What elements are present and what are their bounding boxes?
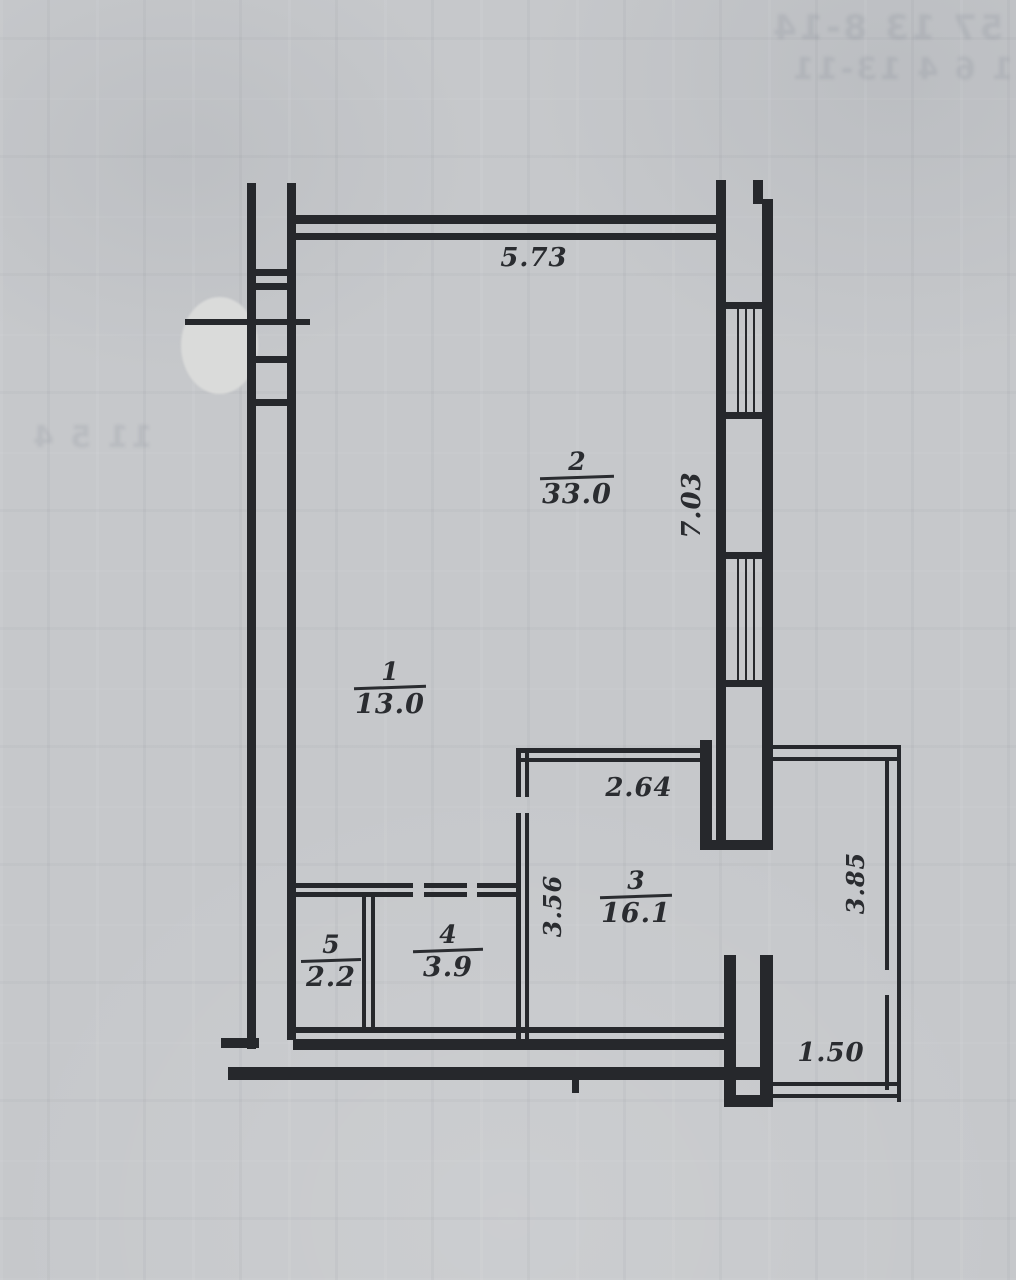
dim-balcony-bottom: 1.50 — [791, 1040, 871, 1066]
wall-pier-lower — [724, 955, 773, 1107]
room-5-area: 2.2 — [306, 964, 356, 991]
wall-top — [287, 215, 719, 240]
room-3-label: 3 16.1 — [595, 868, 677, 927]
window-lower — [726, 552, 762, 687]
dim-right-height: 7.03 — [679, 465, 705, 545]
room-3-number: 3 — [627, 868, 644, 893]
room-2-label: 2 33.0 — [536, 449, 618, 508]
dim-balcony-right: 3.85 — [844, 843, 870, 923]
dim-top-width: 5.73 — [494, 245, 574, 271]
room-4-area: 3.9 — [423, 954, 473, 981]
room-4-number: 4 — [439, 922, 456, 947]
floor-plan-drawing — [0, 0, 1016, 1280]
room-5-label: 5 2.2 — [298, 932, 364, 991]
dim-room3-left: 3.56 — [541, 866, 567, 946]
room-5-number: 5 — [322, 932, 339, 957]
wall-left — [185, 183, 310, 1049]
room-2-area: 33.0 — [542, 481, 612, 508]
wall-right — [716, 180, 773, 847]
window-upper — [726, 302, 762, 419]
room-2-number: 2 — [568, 449, 585, 474]
room-1-label: 1 13.0 — [349, 659, 431, 718]
room-1-area: 13.0 — [355, 691, 425, 718]
dim-room3-top: 2.64 — [599, 775, 679, 801]
floor-plan-page: 57 13 8-14 4 11 6 4 13-11 11 5 4 — [0, 0, 1016, 1280]
room-1-number: 1 — [381, 659, 398, 684]
wall-bottom — [228, 1027, 773, 1093]
room-3-area: 16.1 — [601, 900, 671, 927]
room-4-label: 4 3.9 — [410, 922, 486, 981]
